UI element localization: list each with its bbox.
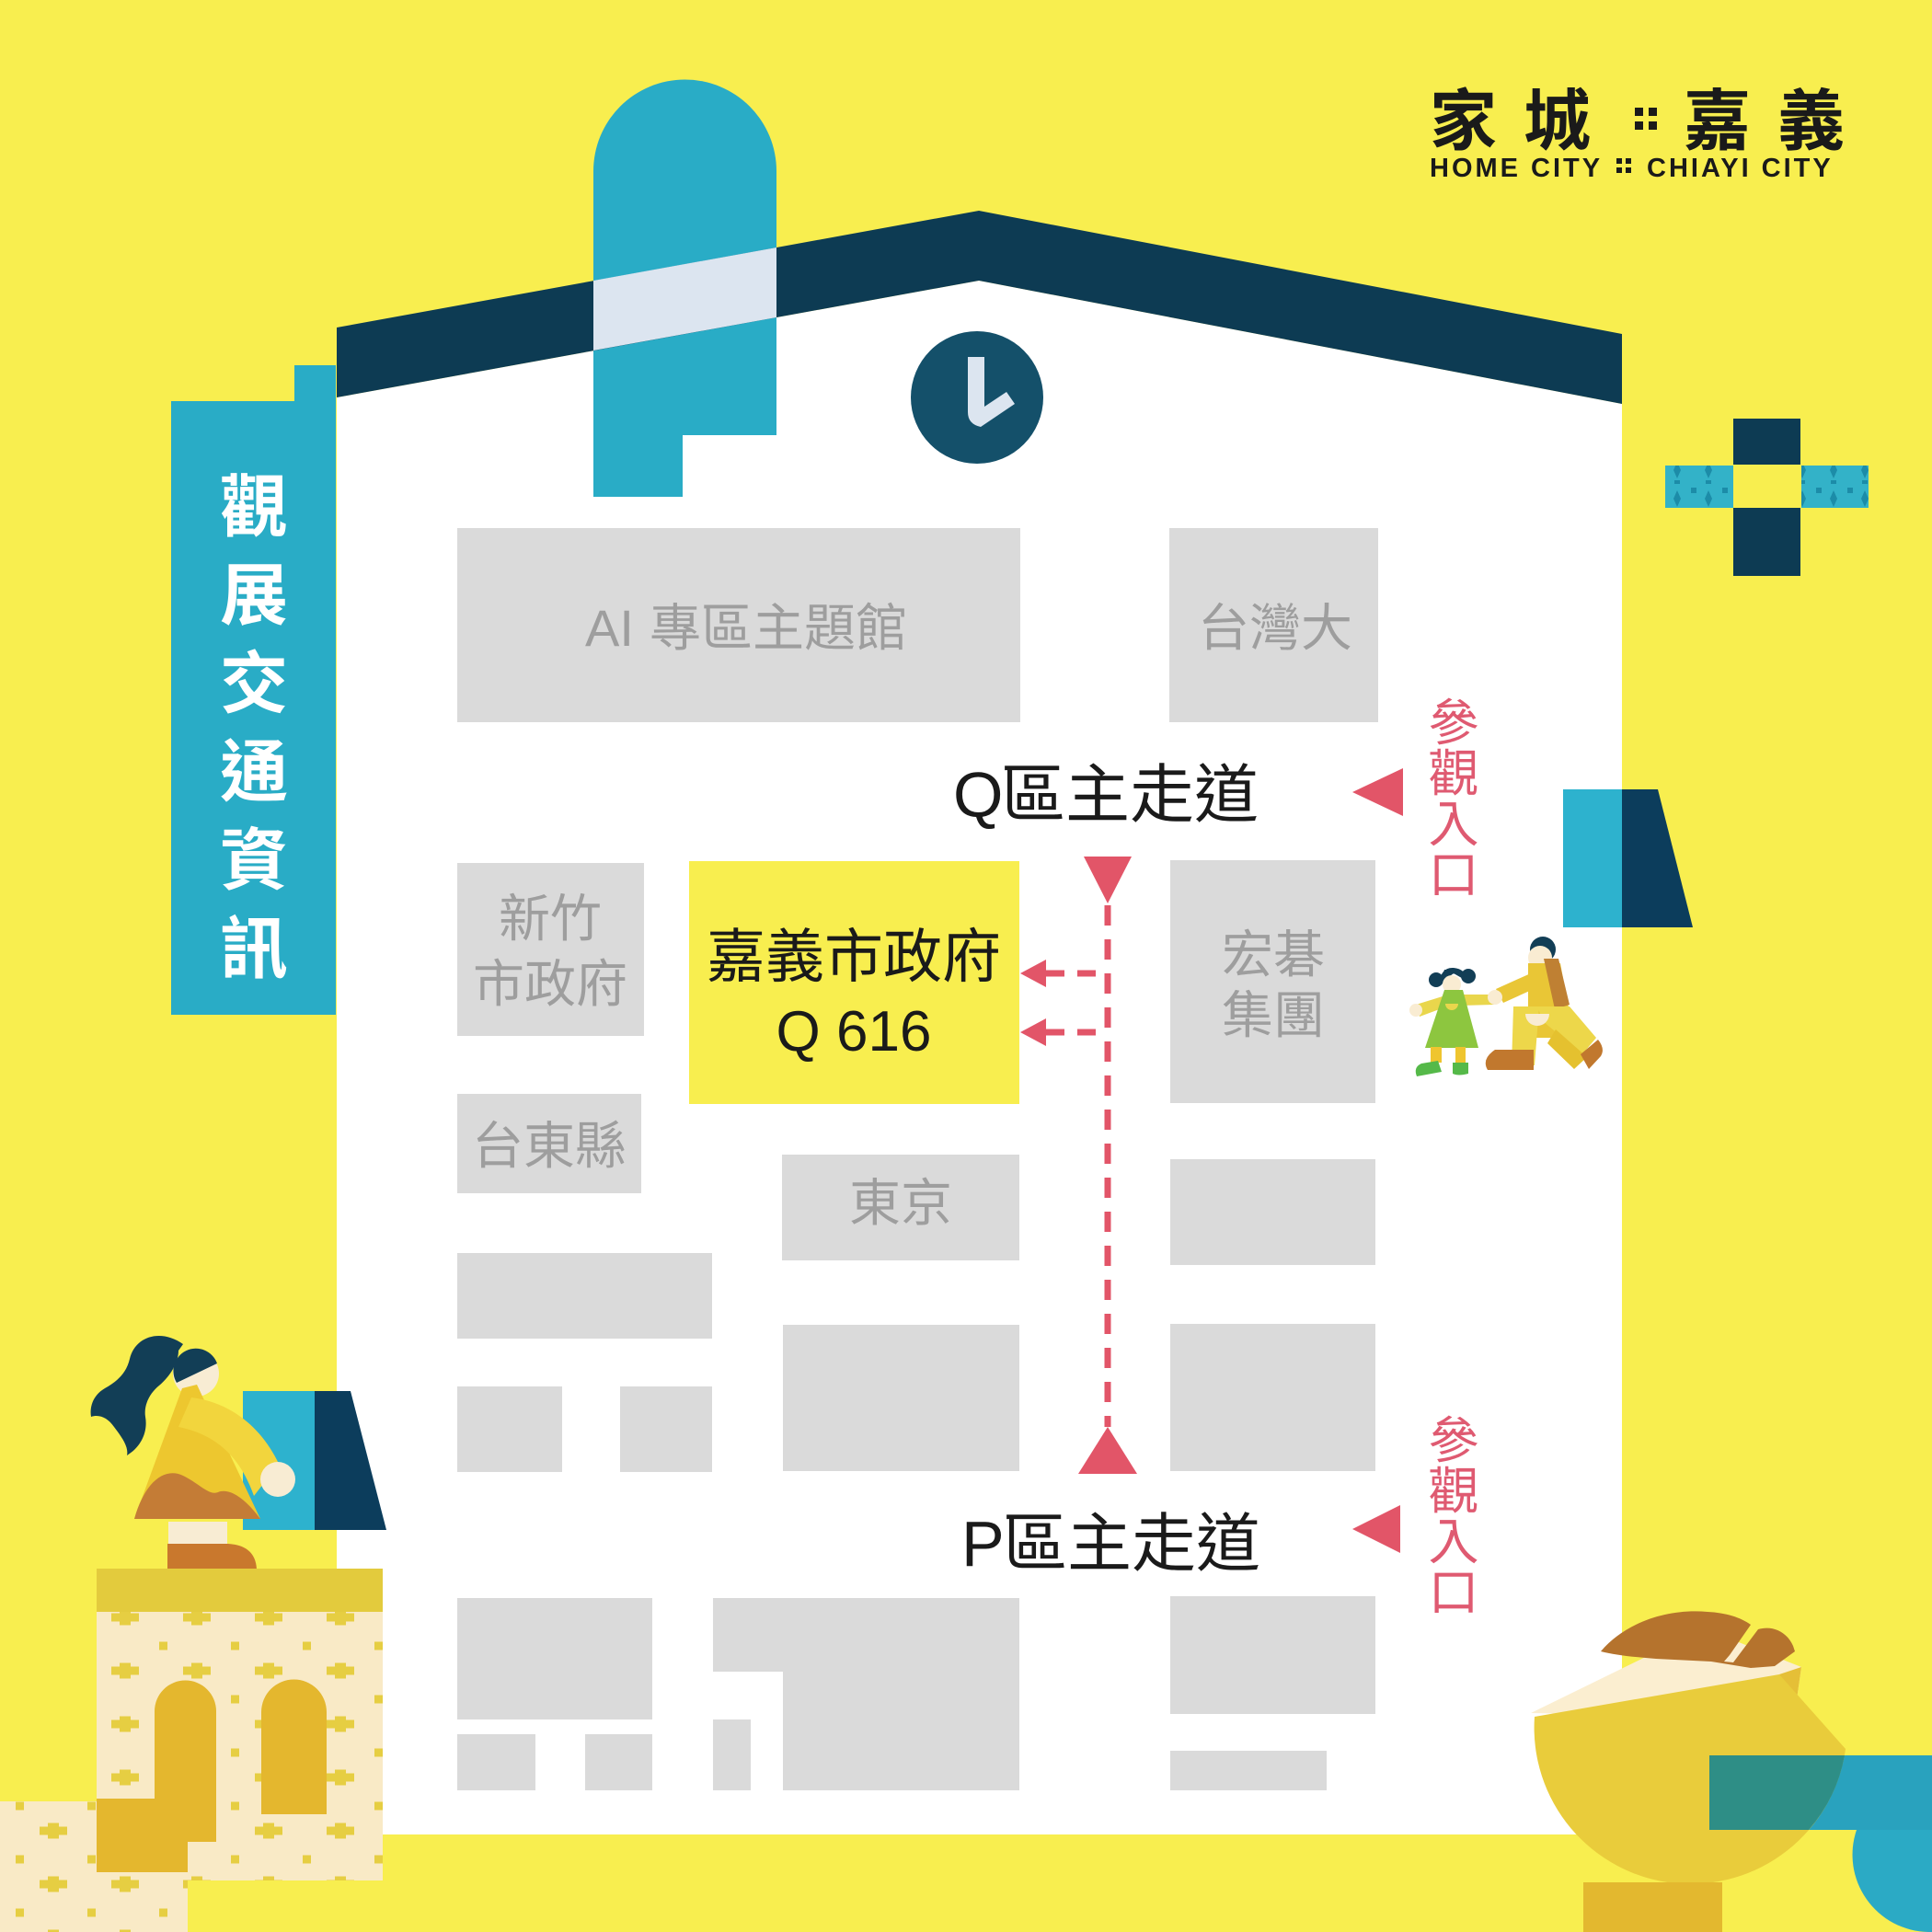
svg-text:AI: AI <box>585 599 634 657</box>
svg-text:Q 616: Q 616 <box>776 1000 932 1064</box>
svg-text:CHIAYI CITY: CHIAYI CITY <box>1647 154 1834 183</box>
svg-text:HOME CITY: HOME CITY <box>1430 154 1603 183</box>
svg-text:Q: Q <box>953 759 1003 831</box>
svg-text:P: P <box>961 1508 1005 1580</box>
